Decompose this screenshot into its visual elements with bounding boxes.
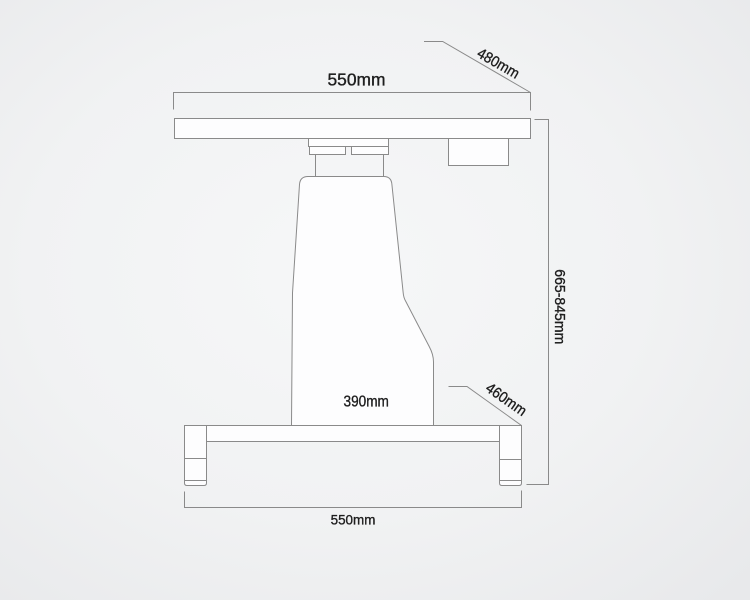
svg-text:665-845mm: 665-845mm	[551, 269, 568, 344]
svg-text:390mm: 390mm	[344, 394, 389, 411]
svg-text:550mm: 550mm	[328, 69, 386, 89]
svg-text:550mm: 550mm	[331, 512, 376, 528]
